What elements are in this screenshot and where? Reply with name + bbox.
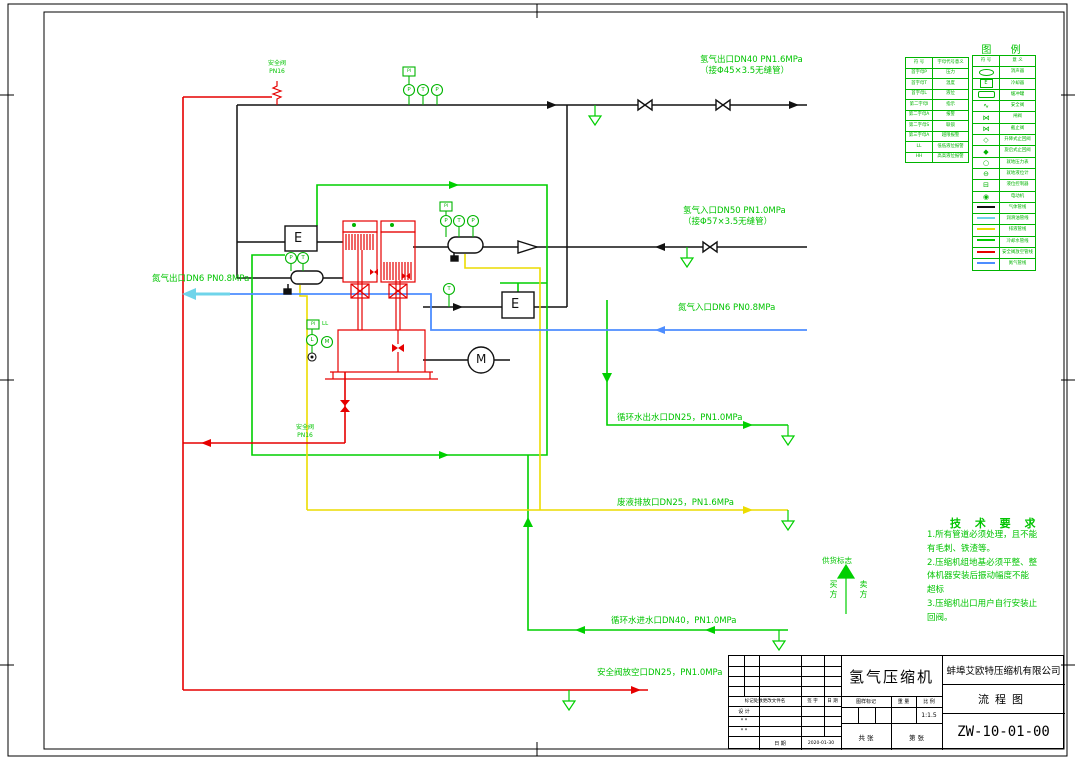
separator-2 <box>448 237 483 253</box>
line-black-icon <box>977 206 995 208</box>
strainer-icon <box>518 241 537 253</box>
line-cyan-icon <box>977 217 995 219</box>
pi-bubble: P <box>468 218 479 225</box>
label-n2-outlet: 氮气出口DN6 PN0.8MPa <box>152 274 249 285</box>
motor-icon: ◉ <box>983 193 989 201</box>
gauge-icon: ○ <box>983 159 989 167</box>
company-name: 蚌埠艾欧特压缩机有限公司 <box>942 656 1065 684</box>
flow-arrows <box>182 101 799 694</box>
audit-row-label: * * <box>729 726 759 736</box>
check1-icon: ◇ <box>983 136 988 144</box>
label-h2-outlet: 氢气出口DN40 PN1.6MPa（接Φ45×3.5无缝管） <box>700 55 803 76</box>
weight-label: 重 量 <box>891 696 916 707</box>
cooler-2-letter: E <box>511 297 519 313</box>
label-supply-mark: 供货标志 <box>822 556 852 565</box>
label-seller: 卖方 <box>858 580 868 600</box>
gate-icon: ⋈ <box>983 114 990 122</box>
line-blue-icon <box>977 262 995 264</box>
motor-letter: M <box>476 352 486 367</box>
drawing-title: 氢气压缩机 <box>841 656 942 696</box>
label-h2-inlet: 氢气入口DN50 PN1.0MPa（接Φ57×3.5无缝管） <box>683 206 786 227</box>
sheets-total: 共 张 <box>841 723 891 750</box>
valve-icon <box>723 100 730 110</box>
valve-icon <box>710 242 717 252</box>
design-row-label: 设 计 <box>729 706 759 716</box>
label-waste-drain: 废液排放口DN25，PN1.6MPa <box>617 498 734 509</box>
sign-header: 签 字 <box>801 696 824 706</box>
label-safety-valve-2: 安全阀PN16 <box>282 424 328 439</box>
levelglass-icon: ⊖ <box>983 170 989 178</box>
doc-type: 流程图 <box>942 684 1065 713</box>
ebox-icon: E <box>980 79 993 88</box>
title-block: 标记处数更改文件名 签 字 日 期 设 计 * * * * 日 期 2020-0… <box>728 655 1064 749</box>
label-relief-outlet: 安全阀放空口DN25，PN1.0MPa <box>597 668 723 679</box>
legend-codes-table: 符 号字母代号意义首字母P压力首字母T温度首字母L液位第二字母I指示第二字母A报… <box>905 57 969 163</box>
scale-value: 1:1.5 <box>916 707 942 723</box>
label-n2-inlet: 氮气入口DN6 PN0.8MPa <box>678 303 775 314</box>
rrect-icon <box>978 91 995 98</box>
tech-requirements-text: 1.所有管道必须处理，且不能有毛刺、铁渣等。 2.压缩机组地基必须平整、整体机器… <box>927 529 1061 626</box>
pi-bubble: P <box>441 218 452 225</box>
pi-bubble: P <box>404 87 415 94</box>
instrument-bubbles <box>286 67 479 361</box>
date-label: 日 期 <box>759 736 801 750</box>
label-safety-valve-1: 安全阀PN16 <box>254 60 300 75</box>
drain-piping <box>300 254 788 510</box>
pump-bubble: M <box>322 339 333 346</box>
ti-bubble: T <box>418 87 429 94</box>
oval-icon <box>979 69 994 76</box>
date-header: 日 期 <box>824 696 841 706</box>
label-cw-outlet: 循环水出水口DN25，PN1.0MPa <box>617 413 743 424</box>
scale-label: 比 例 <box>916 696 942 707</box>
mark-label: 图样标记 <box>841 696 891 707</box>
ti-bubble: T <box>444 286 455 293</box>
li-bubble: L <box>307 337 318 344</box>
pi-tag: PI <box>440 204 452 210</box>
line-green-icon <box>977 239 995 241</box>
safety-icon: ∿ <box>983 102 989 110</box>
levelbox-icon: ⊟ <box>983 181 989 189</box>
rev-header: 标记处数更改文件名 <box>729 696 801 706</box>
globe-icon: ⋈ <box>983 125 990 133</box>
safety-valve-icon <box>273 81 281 105</box>
ll-tag: LL <box>322 321 328 328</box>
legend-title: 图 例 <box>960 41 1050 56</box>
ti-bubble: T <box>298 255 309 262</box>
pi-tag: PI <box>307 322 319 328</box>
pi-bubble: P <box>432 87 443 94</box>
date-value: 2020-01-30 <box>801 736 841 750</box>
ti-bubble: T <box>454 218 465 225</box>
flow-diagram-sheet: 氢气出口DN40 PN1.6MPa（接Φ45×3.5无缝管） 氢气入口DN50 … <box>0 0 1075 760</box>
label-buyer: 买方 <box>828 580 838 600</box>
line-red-icon <box>977 251 995 253</box>
line-yellow-icon <box>977 228 995 230</box>
pi-tag: PI <box>403 69 415 75</box>
cooler-1-letter: E <box>294 231 302 247</box>
valve-icon <box>645 100 652 110</box>
separator-1 <box>291 271 323 284</box>
pi-bubble: P <box>286 255 297 262</box>
check2-icon: ◆ <box>983 148 988 156</box>
label-cw-inlet: 循环水进水口DN40，PN1.0MPa <box>611 616 737 627</box>
sheet-no: 第 张 <box>891 723 942 750</box>
legend-symbols-table: 符 号意 义消声器E冷却器缓冲罐∿安全阀⋈闸阀⋈截止阀◇升降式止回阀◆旋启式止回… <box>972 55 1036 271</box>
drawing-number: ZW-10-01-00 <box>942 713 1065 750</box>
check-row-label: * * <box>729 716 759 726</box>
